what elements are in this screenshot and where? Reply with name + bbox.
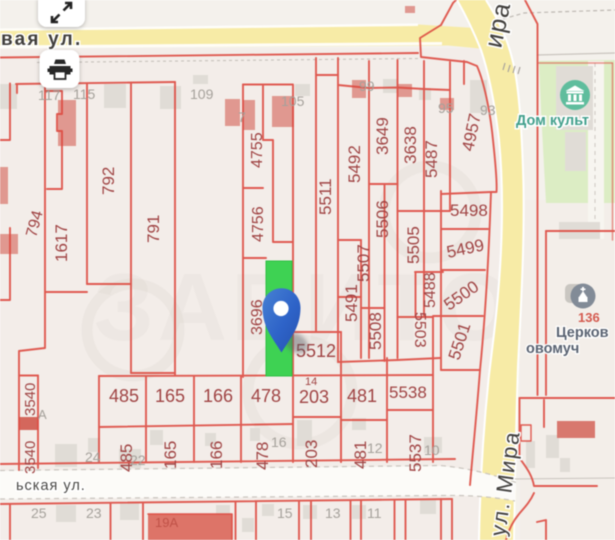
svg-text:5498: 5498 [450,201,488,220]
svg-text:481: 481 [347,386,377,406]
svg-text:25: 25 [31,505,47,521]
svg-text:5491: 5491 [342,284,361,322]
svg-text:11: 11 [367,505,382,521]
svg-text:Дом культ: Дом культ [516,113,589,129]
svg-text:4756: 4756 [250,206,267,242]
svg-text:13: 13 [325,505,341,521]
svg-text:165: 165 [161,441,180,469]
svg-text:19А: 19А [155,515,178,530]
svg-text:14: 14 [305,376,317,388]
svg-text:24: 24 [85,449,101,465]
svg-text:117: 117 [38,87,61,103]
svg-text:овомуч: овомуч [526,341,579,357]
svg-text:5508: 5508 [366,312,385,350]
svg-text:115: 115 [73,86,96,102]
svg-text:7: 7 [238,109,246,125]
svg-text:15: 15 [277,505,293,521]
svg-text:791: 791 [144,215,163,243]
svg-text:5511: 5511 [316,178,335,215]
svg-text:165: 165 [155,386,185,406]
svg-text:203: 203 [299,387,329,407]
svg-text:А: А [38,407,47,422]
svg-text:95: 95 [438,100,454,116]
svg-text:109: 109 [190,86,214,102]
svg-text:22: 22 [130,452,146,468]
svg-text:5507: 5507 [354,244,373,282]
svg-text:23: 23 [86,505,102,521]
svg-text:93: 93 [480,102,496,118]
svg-text:1617: 1617 [52,224,71,262]
svg-text:5505: 5505 [404,226,423,264]
svg-text:166: 166 [207,441,226,469]
svg-text:12: 12 [367,440,383,456]
svg-text:5503: 5503 [411,312,428,348]
svg-text:5488: 5488 [422,272,439,308]
svg-text:166: 166 [203,386,233,406]
svg-text:485: 485 [109,386,139,406]
svg-text:478: 478 [251,386,281,406]
svg-text:99: 99 [359,78,375,94]
svg-text:5506: 5506 [373,200,392,238]
svg-text:3638: 3638 [401,126,420,164]
svg-text:792: 792 [99,167,118,195]
svg-text:5487: 5487 [422,140,441,178]
svg-text:3540: 3540 [22,441,39,474]
svg-text:5538: 5538 [389,383,427,402]
svg-text:136: 136 [578,310,600,325]
svg-text:3540: 3540 [22,383,39,416]
svg-text:3649: 3649 [373,117,392,155]
svg-text:вая ул.: вая ул. [1,29,82,50]
svg-text:16: 16 [271,434,287,450]
svg-text:105: 105 [281,93,305,109]
svg-text:Церков: Церков [556,325,609,341]
svg-text:203: 203 [302,440,321,468]
svg-text:5492: 5492 [345,145,364,183]
svg-text:478: 478 [253,442,272,470]
svg-text:5537: 5537 [406,434,425,472]
svg-text:10: 10 [424,442,440,458]
svg-text:4755: 4755 [249,132,266,168]
svg-text:ьская ул.: ьская ул. [16,478,86,494]
